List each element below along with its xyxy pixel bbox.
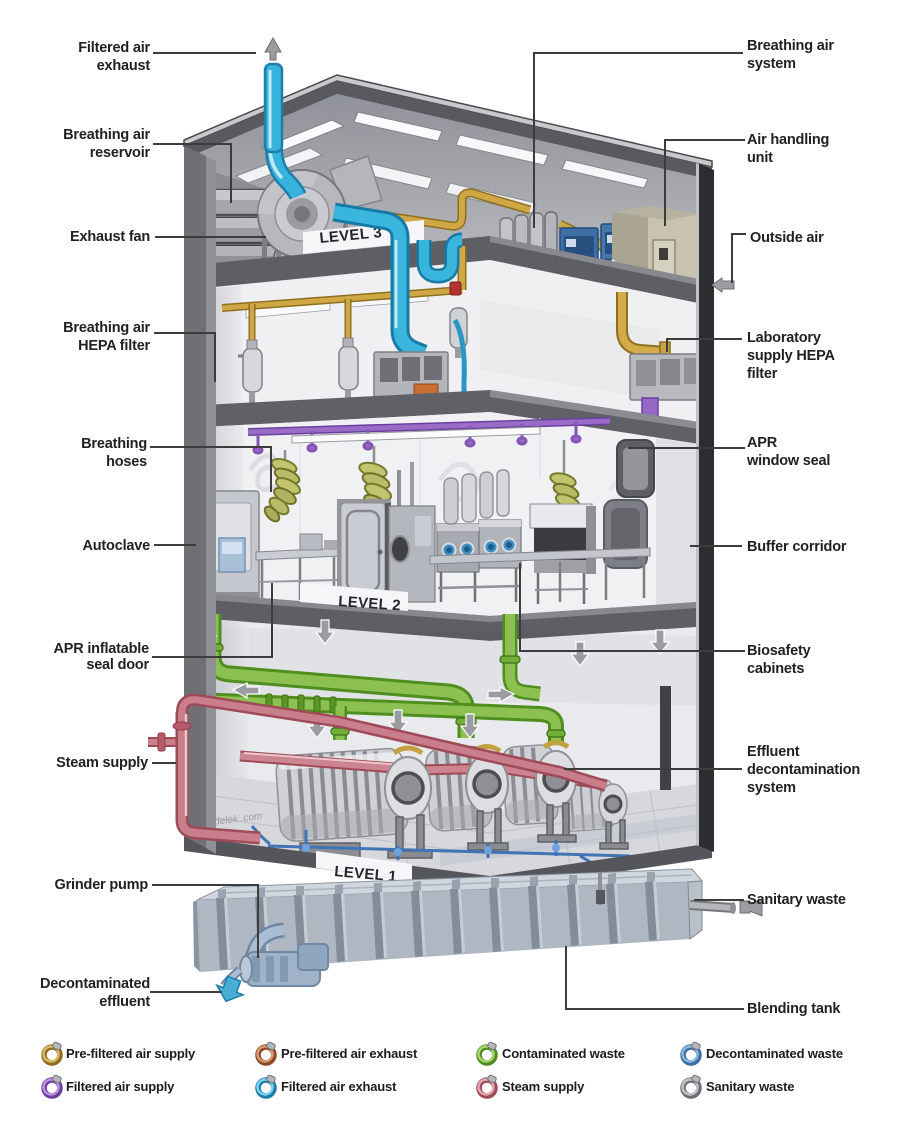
svg-text:Breathing air: Breathing air xyxy=(63,320,150,336)
svg-text:Filtered air exhaust: Filtered air exhaust xyxy=(281,1079,397,1094)
svg-text:Contaminated waste: Contaminated waste xyxy=(502,1046,625,1061)
svg-text:reservoir: reservoir xyxy=(90,145,151,161)
svg-text:Exhaust fan: Exhaust fan xyxy=(70,229,150,245)
svg-text:Pre-filtered air exhaust: Pre-filtered air exhaust xyxy=(281,1046,418,1061)
svg-text:Steam supply: Steam supply xyxy=(56,755,148,771)
svg-text:Breathing air: Breathing air xyxy=(747,38,834,54)
svg-text:window seal: window seal xyxy=(746,453,830,469)
svg-text:HEPA filter: HEPA filter xyxy=(78,338,150,354)
svg-text:Filtered air supply: Filtered air supply xyxy=(66,1079,175,1094)
svg-text:filter: filter xyxy=(747,366,778,382)
svg-text:Effluent: Effluent xyxy=(747,744,800,760)
svg-text:decontamination: decontamination xyxy=(747,762,860,778)
svg-text:Decontaminated waste: Decontaminated waste xyxy=(706,1046,843,1061)
svg-text:Blending tank: Blending tank xyxy=(747,1001,841,1017)
svg-text:Biosafety: Biosafety xyxy=(747,643,811,659)
svg-text:system: system xyxy=(747,56,796,72)
svg-text:Autoclave: Autoclave xyxy=(83,538,151,554)
svg-text:Outside air: Outside air xyxy=(750,230,824,246)
svg-text:unit: unit xyxy=(747,150,773,166)
svg-text:APR inflatable: APR inflatable xyxy=(54,641,150,657)
svg-text:Air handling: Air handling xyxy=(747,132,829,148)
svg-text:Pre-filtered air supply: Pre-filtered air supply xyxy=(66,1046,196,1061)
svg-text:supply HEPA: supply HEPA xyxy=(747,348,835,364)
svg-text:Sanitary waste: Sanitary waste xyxy=(706,1079,794,1094)
svg-text:Breathing air: Breathing air xyxy=(63,127,150,143)
svg-text:Laboratory: Laboratory xyxy=(747,330,821,346)
svg-text:Buffer corridor: Buffer corridor xyxy=(747,539,847,555)
svg-text:Decontaminated: Decontaminated xyxy=(40,976,150,992)
svg-text:APR: APR xyxy=(747,435,778,451)
svg-text:cabinets: cabinets xyxy=(747,661,804,677)
svg-text:exhaust: exhaust xyxy=(97,58,151,74)
svg-text:Grinder pump: Grinder pump xyxy=(55,877,149,893)
svg-text:Steam supply: Steam supply xyxy=(502,1079,585,1094)
svg-text:seal door: seal door xyxy=(86,657,149,673)
svg-text:Breathing: Breathing xyxy=(81,436,147,452)
svg-text:Sanitary waste: Sanitary waste xyxy=(747,892,846,908)
svg-text:Filtered air: Filtered air xyxy=(78,40,150,56)
svg-text:hoses: hoses xyxy=(106,454,147,470)
svg-text:system: system xyxy=(747,780,796,796)
svg-text:effluent: effluent xyxy=(99,994,150,1010)
